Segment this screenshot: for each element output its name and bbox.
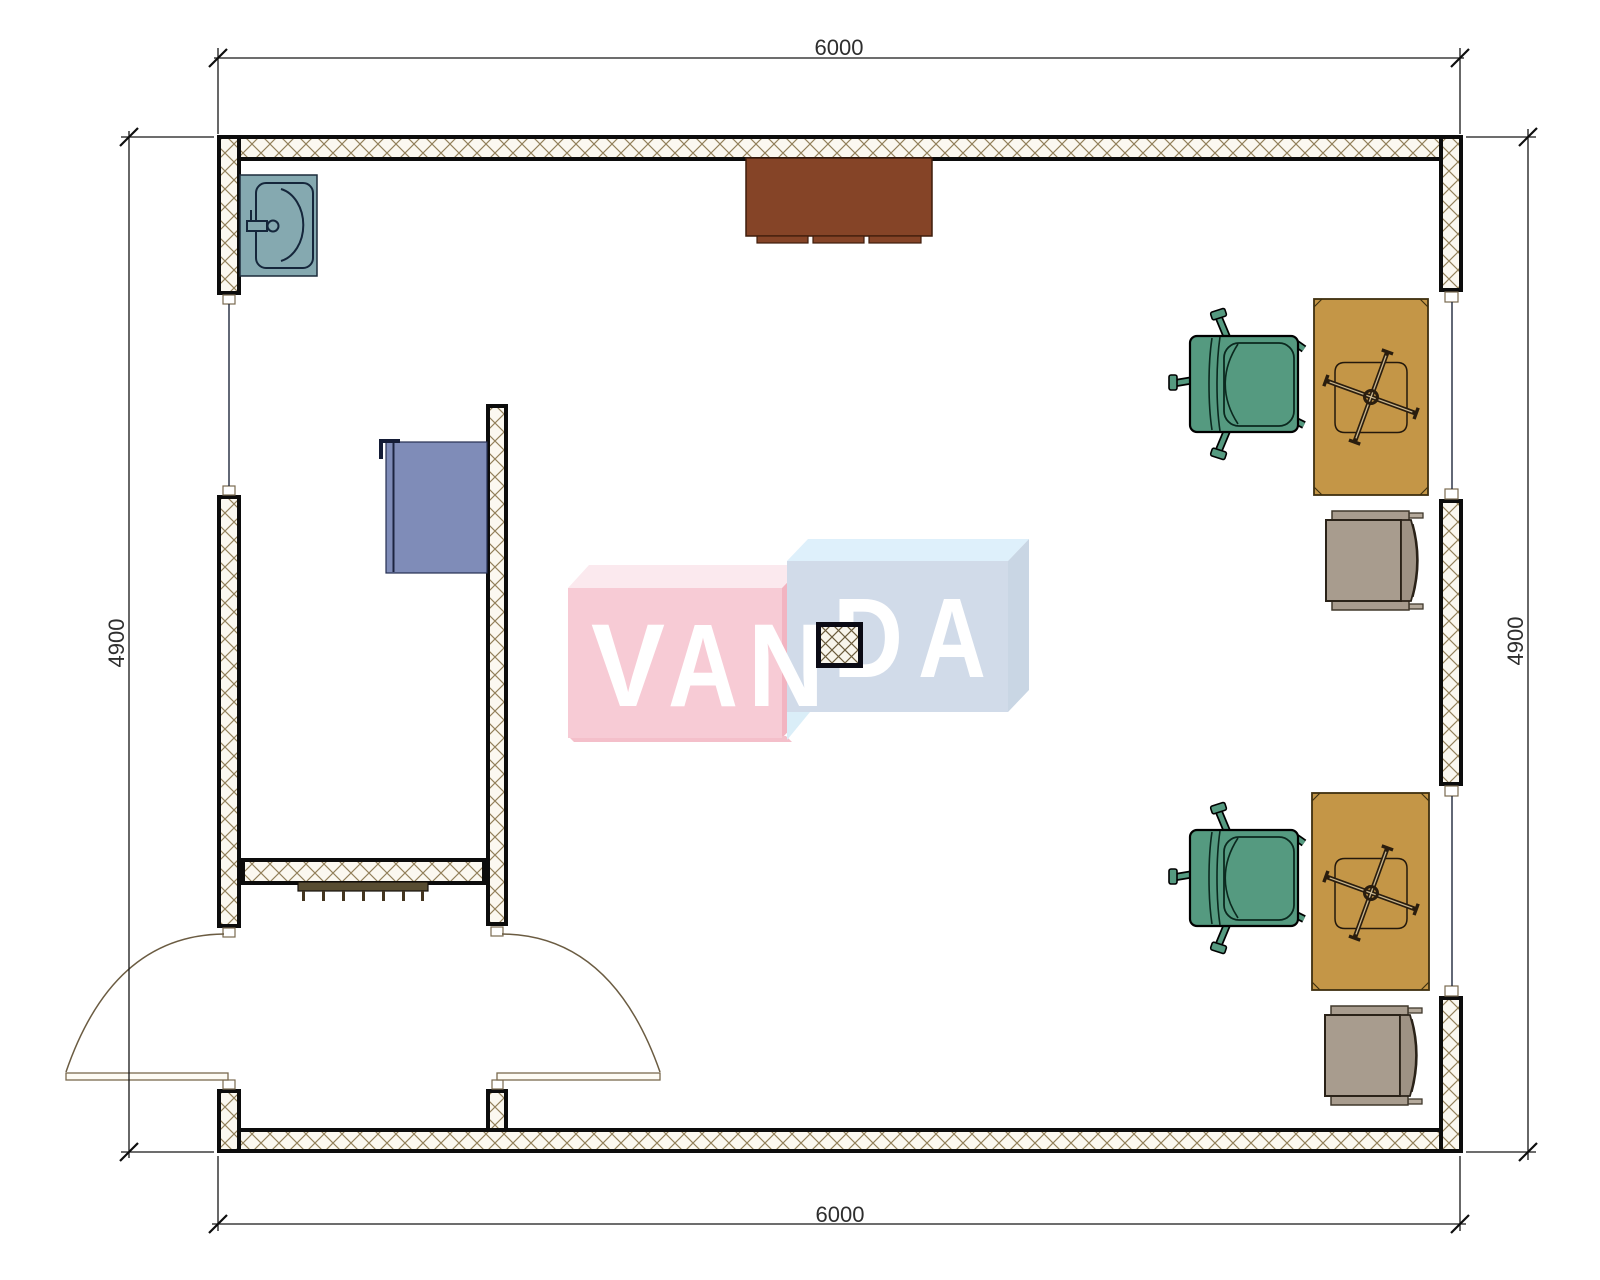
svg-text:4900: 4900 [1503, 617, 1528, 666]
svg-text:N: N [748, 600, 824, 732]
svg-text:6000: 6000 [816, 1202, 865, 1227]
svg-text:6000: 6000 [815, 35, 864, 60]
svg-text:A: A [918, 575, 986, 701]
svg-text:A: A [668, 600, 738, 732]
svg-text:4900: 4900 [104, 619, 129, 668]
svg-text:V: V [591, 600, 665, 732]
